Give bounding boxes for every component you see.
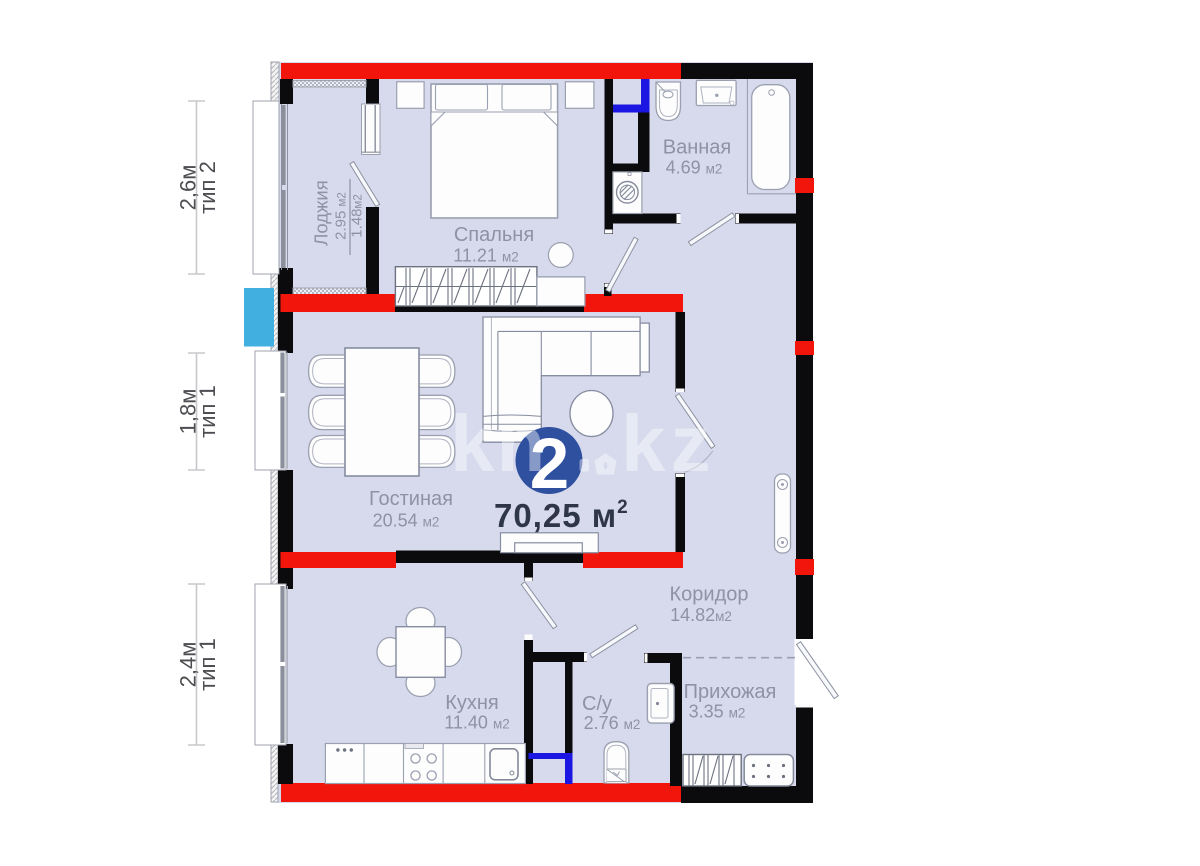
svg-text:Ванная: Ванная — [663, 137, 732, 159]
svg-text:kz: kz — [621, 399, 716, 488]
svg-text:тип 1: тип 1 — [195, 385, 220, 438]
svg-text:Лоджия: Лоджия — [311, 180, 332, 246]
svg-text:тип 2: тип 2 — [195, 161, 220, 214]
svg-text:Гостиная: Гостиная — [369, 488, 453, 510]
svg-text:Кухня: Кухня — [445, 692, 499, 714]
svg-text:kn: kn — [450, 399, 547, 488]
svg-text:70,25 м2: 70,25 м2 — [494, 497, 629, 534]
svg-text:С/у: С/у — [582, 693, 612, 715]
svg-text:Коридор: Коридор — [670, 584, 749, 606]
svg-text:Прихожая: Прихожая — [684, 681, 777, 703]
svg-text:тип 1: тип 1 — [195, 638, 220, 691]
svg-text:Спальня: Спальня — [454, 224, 534, 246]
